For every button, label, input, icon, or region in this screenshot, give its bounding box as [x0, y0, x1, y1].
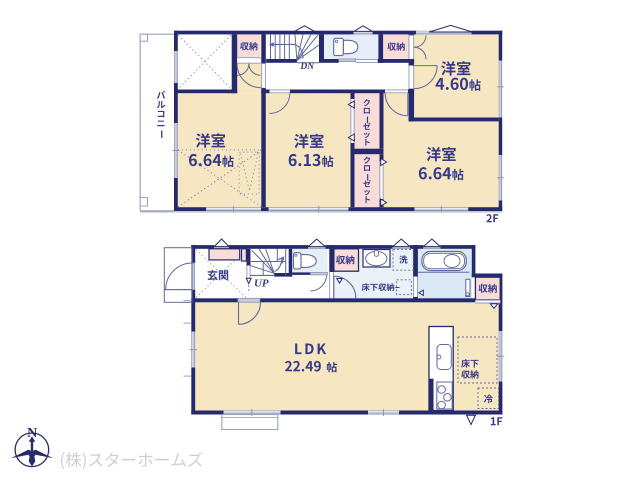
svg-text:DN: DN — [299, 62, 315, 72]
svg-text:N: N — [27, 426, 37, 441]
svg-text:UP: UP — [254, 278, 269, 290]
